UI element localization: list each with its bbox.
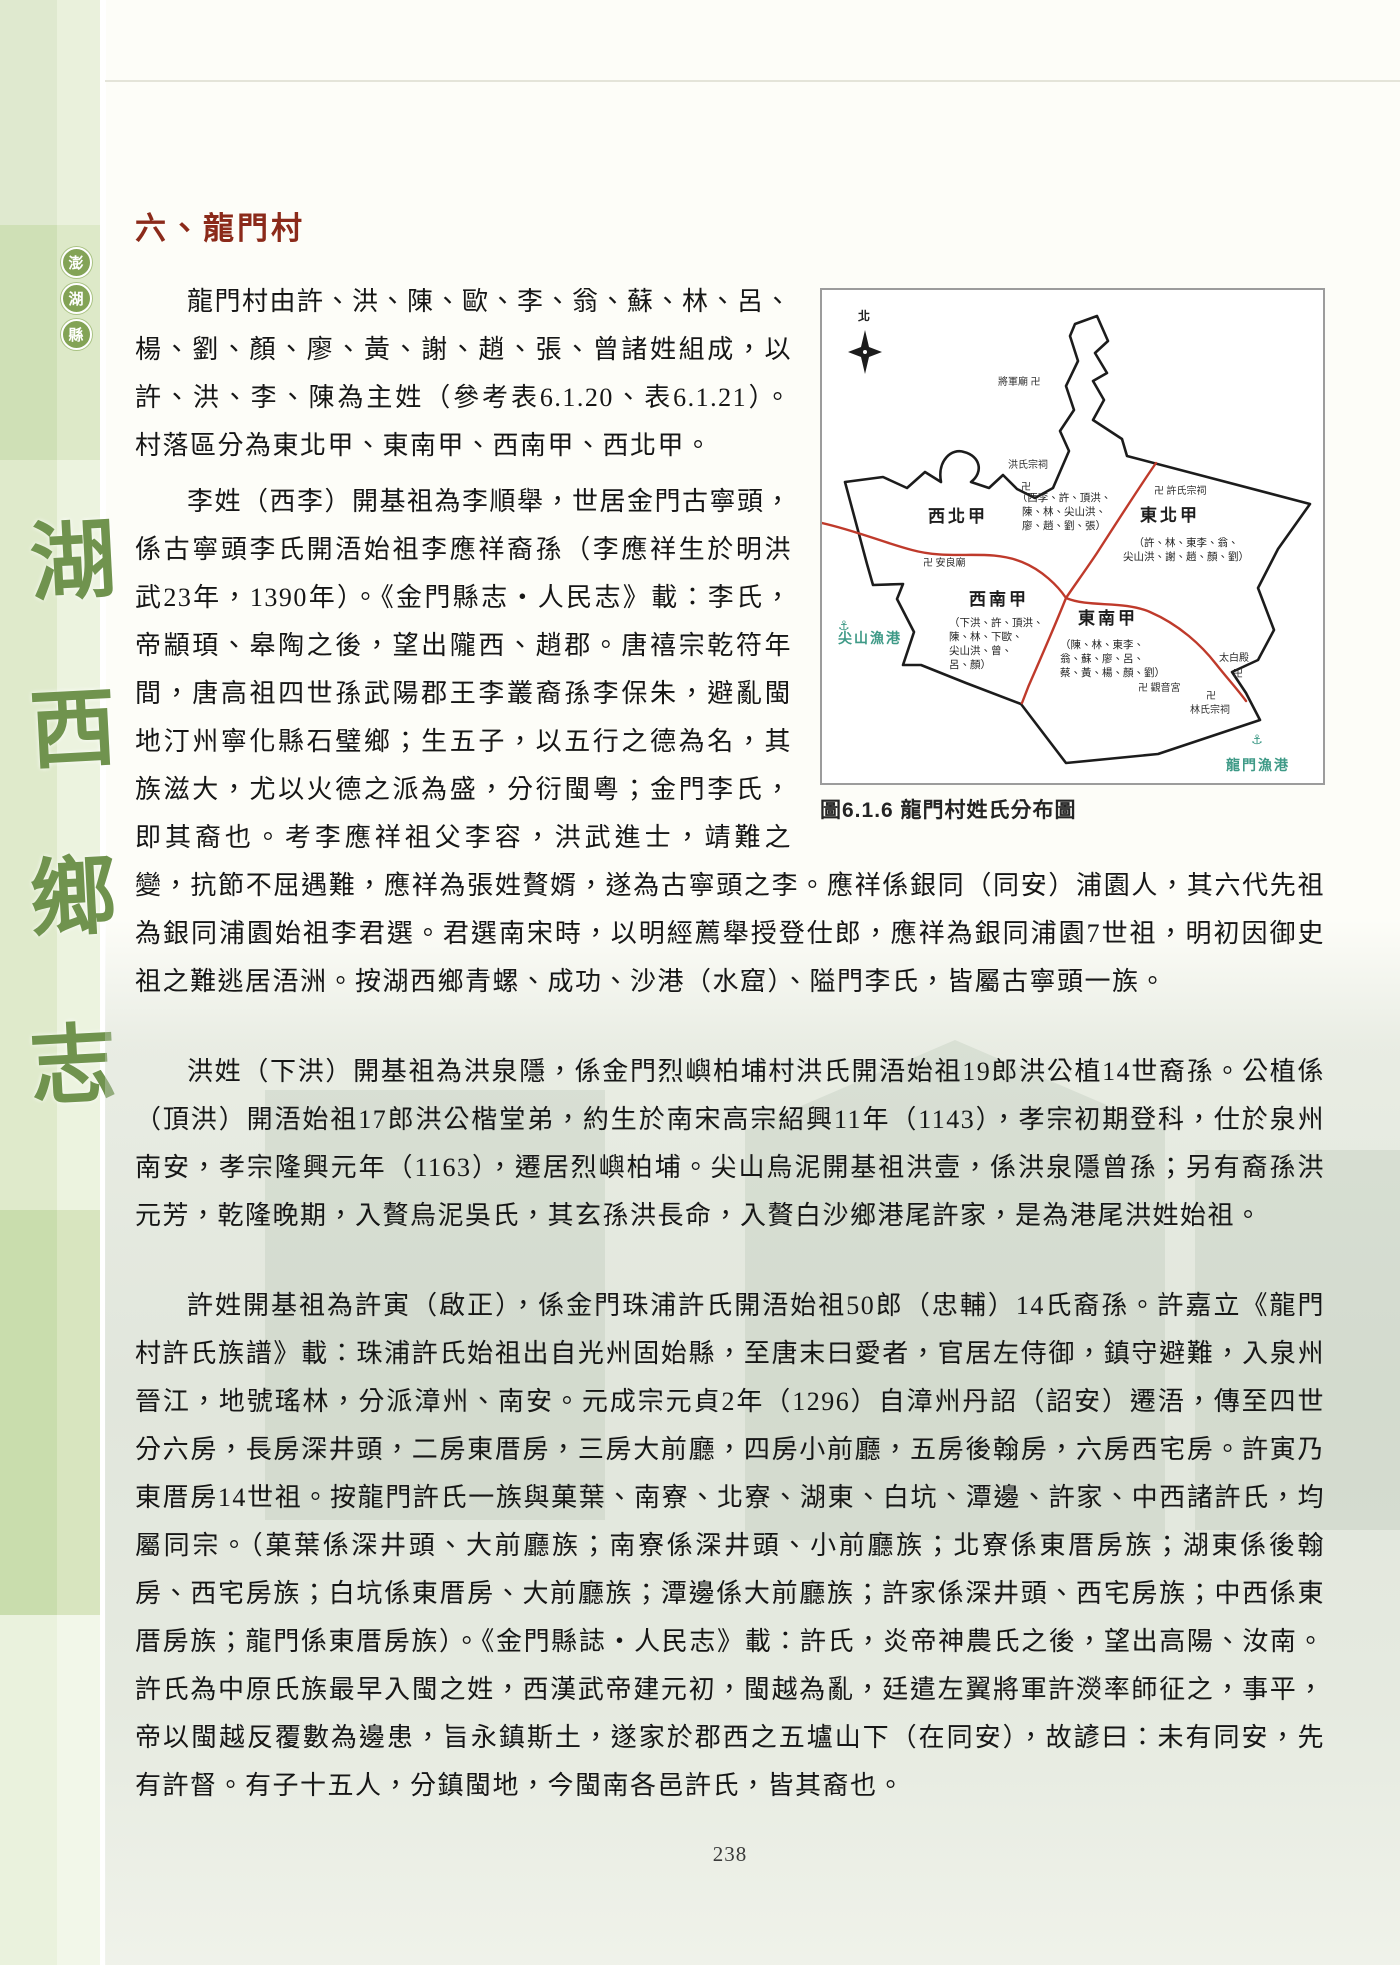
region-xibei-members: （西李、許、頂洪、 陳、林、尖山洪、 廖、趙、劉、張） [998,492,1130,534]
paragraph-xu-clan: 許姓開基祖為許寅（啟正），係金門珠浦許氏開浯始祖50郎（忠輔）14氏裔孫。許嘉立… [135,1282,1325,1810]
xu-shrine-label: 卍 許氏宗祠 [1154,485,1207,498]
county-badge: 澎 湖 縣 [60,247,92,350]
taibai-temple-swastika: 卍 [1233,668,1243,681]
anchor-icon: ⚓ [1218,734,1298,747]
anliang-temple-label: 卍 安良廟 [923,557,966,570]
book-title-char: 鄉 [26,812,121,984]
hong-shrine-label: 洪氏宗祠 [1008,459,1048,472]
compass-center [863,350,868,355]
jiangjun-temple-label: 將軍廟 卍 [998,376,1041,389]
county-badge-char: 湖 [61,283,92,314]
book-title-char: 西 [26,644,121,816]
paragraph-hong-clan: 洪姓（下洪）開基祖為洪泉隱，係金門烈嶼柏埔村洪氏開浯始祖19郎洪公植14世裔孫。… [135,1048,1325,1240]
taibai-temple-label: 太白殿 [1219,652,1249,665]
book-title-char: 志 [26,980,121,1152]
hong-shrine-swastika: 卍 [1021,481,1031,494]
book-title-char: 湖 [26,476,121,648]
section-title: 六、龍門村 [135,203,1325,248]
jianshan-harbor-text: 尖山漁港 [838,632,902,647]
map-box: 北 西北甲 （西李、許、頂洪、 陳、林、尖山洪、 廖、趙、劉、張） 東北甲 （許… [820,288,1325,785]
county-badge-char: 澎 [61,247,92,278]
book-page: 澎 湖 縣 湖 西 鄉 志 六、龍門村 [0,0,1400,1965]
region-xinan-members: （下洪、許、頂洪、 陳、林、下歐、 尖山洪、曾、 呂、顏） [949,617,1069,673]
region-dongbei-members: （許、林、東李、翁、 尖山洪、謝、趙、顏、劉） [1106,537,1266,565]
lin-shrine-swastika: 卍 [1206,690,1216,703]
longmen-harbor-label: ⚓ 龍門漁港 [1218,721,1298,773]
region-dongnan-name: 東南甲 [1078,612,1138,625]
main-content: 六、龍門村 北 西北甲 （西李、許、頂洪、 陳、林、尖山洪、 廖 [135,0,1325,1867]
region-xibei-name: 西北甲 [928,510,988,523]
guanyin-temple-label: 卍 觀音宮 [1138,682,1181,695]
jianshan-harbor-label: ⚓ 尖山漁港 [838,607,902,646]
page-number: 238 [135,1842,1325,1867]
lin-shrine-label: 林氏宗祠 [1190,704,1230,717]
region-dongnan-members: （陳、林、東李、 翁、蘇、廖、呂、 蔡、黃、楊、顏、劉） [1060,639,1200,681]
region-xinan-name: 西南甲 [969,593,1029,606]
figure-surname-map: 北 西北甲 （西李、許、頂洪、 陳、林、尖山洪、 廖、趙、劉、張） 東北甲 （許… [820,288,1325,824]
region-dongbei-name: 東北甲 [1140,509,1200,522]
county-badge-char: 縣 [61,319,92,350]
figure-caption: 圖6.1.6 龍門村姓氏分布圖 [820,794,1325,824]
sidebar: 澎 湖 縣 湖 西 鄉 志 [0,0,105,1965]
compass-north-label: 北 [858,310,870,323]
longmen-harbor-text: 龍門漁港 [1226,759,1290,774]
book-title-vertical: 湖 西 鄉 志 [38,478,108,1150]
